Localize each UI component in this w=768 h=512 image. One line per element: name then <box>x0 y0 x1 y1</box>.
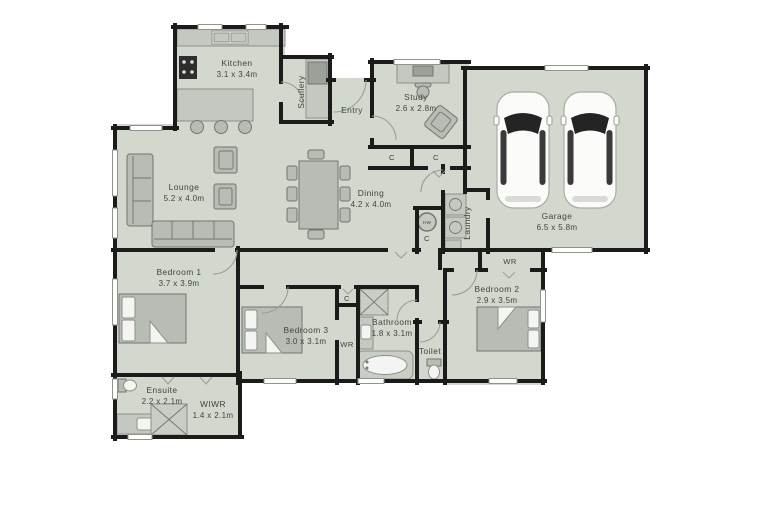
kitchen-island <box>177 89 253 121</box>
pillow <box>122 320 135 341</box>
pillow <box>245 331 257 350</box>
label-bedroom1: Bedroom 1 <box>156 267 201 277</box>
label-bedroom3: Bedroom 3 <box>283 325 328 335</box>
pillow <box>122 297 135 318</box>
scullery-appliance <box>308 62 327 84</box>
dims-garage: 6.5 x 5.8m <box>537 223 578 232</box>
garage-door <box>552 248 592 253</box>
dims-wiwr: 1.4 x 2.1m <box>193 411 234 420</box>
chair-icon <box>308 230 324 239</box>
label-entry: Entry <box>341 105 363 115</box>
car-icon <box>561 92 619 208</box>
toilet-icon <box>429 365 440 379</box>
chair-icon <box>287 187 297 201</box>
label-closet: C <box>424 234 430 243</box>
basin-icon <box>361 325 371 339</box>
label-bathroom: Bathroom <box>372 317 412 327</box>
monitor-icon <box>413 66 433 76</box>
car-icon <box>494 92 552 208</box>
dims-bedroom2: 2.9 x 3.5m <box>477 296 518 305</box>
window <box>113 379 118 399</box>
label-laundry: Laundry <box>462 206 472 240</box>
label-wardrobe: WR <box>503 257 517 266</box>
label-toilet: Toilet <box>419 346 441 356</box>
label-lounge: Lounge <box>169 182 200 192</box>
kitchen-sink-basin <box>214 33 229 42</box>
stool-icon <box>215 121 228 134</box>
window <box>113 279 118 325</box>
dining-table <box>299 161 338 229</box>
chair-icon <box>340 208 350 222</box>
dims-bedroom3: 3.0 x 3.1m <box>286 337 327 346</box>
chair-icon <box>340 166 350 180</box>
window <box>113 150 118 196</box>
label-wiwr: WIWR <box>200 399 226 409</box>
dims-lounge: 5.2 x 4.0m <box>164 194 205 203</box>
label-garage: Garage <box>542 211 573 221</box>
chair-icon <box>308 150 324 159</box>
window <box>545 66 588 71</box>
sofa-icon <box>127 154 153 226</box>
label-closet: C <box>433 153 439 162</box>
dims-study: 2.6 x 2.8m <box>396 104 437 113</box>
label-wardrobe: WR <box>340 340 354 349</box>
dims-bathroom: 1.8 x 3.1m <box>372 329 413 338</box>
window <box>128 435 152 440</box>
label-scullery: Scullery <box>296 75 306 109</box>
stool-icon <box>191 121 204 134</box>
pillow <box>528 310 539 328</box>
stove-icon <box>179 56 197 79</box>
floorplan-drawing: Kitchen 3.1 x 3.4m Scullery Entry Study … <box>0 0 768 512</box>
window <box>541 290 546 322</box>
pillow <box>245 310 257 329</box>
toilet-icon <box>124 380 137 391</box>
window <box>264 379 296 384</box>
footer: 118 Hitchen Road, Pokeno FOR VISUAL PURP… <box>0 440 768 512</box>
dims-ensuite: 2.2 x 2.1m <box>142 397 183 406</box>
label-closet: C <box>344 294 350 303</box>
label-study: Study <box>404 92 428 102</box>
chair-icon <box>287 208 297 222</box>
window <box>113 208 118 238</box>
window <box>489 379 517 384</box>
floorplan-page: Kitchen 3.1 x 3.4m Scullery Entry Study … <box>0 0 768 512</box>
window <box>130 126 162 131</box>
window <box>394 60 440 65</box>
dims-bedroom1: 3.7 x 3.9m <box>159 279 200 288</box>
dims-dining: 4.2 x 4.0m <box>351 200 392 209</box>
kitchen-sink-basin <box>231 33 246 42</box>
label-ensuite: Ensuite <box>146 385 177 395</box>
window <box>198 25 222 30</box>
label-closet: C <box>389 153 395 162</box>
bed-icon <box>477 307 541 351</box>
label-kitchen: Kitchen <box>221 58 252 68</box>
stool-icon <box>239 121 252 134</box>
label-hot-water: HW <box>423 220 432 225</box>
dims-kitchen: 3.1 x 3.4m <box>217 70 258 79</box>
label-dining: Dining <box>358 188 384 198</box>
label-bedroom2: Bedroom 2 <box>474 284 519 294</box>
chair-icon <box>340 187 350 201</box>
window <box>358 379 384 384</box>
bed-icon <box>119 294 186 343</box>
window <box>246 25 266 30</box>
chair-icon <box>287 166 297 180</box>
pillow <box>528 330 539 348</box>
